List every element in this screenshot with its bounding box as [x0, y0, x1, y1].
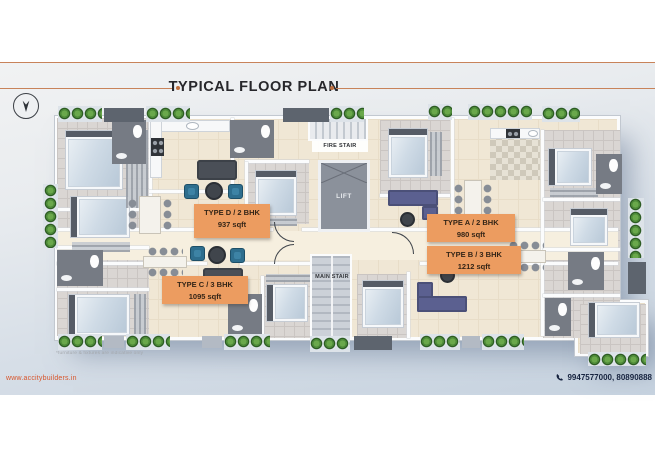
unit-label-type-c: TYPE C / 3 BHK 1095 sqft — [162, 276, 248, 304]
balcony-slab — [202, 336, 222, 348]
disclaimer-text: *furniture & fixtures are indicative onl… — [56, 351, 143, 356]
phone-icon — [555, 373, 564, 382]
planter — [310, 336, 350, 352]
armchair — [190, 246, 205, 261]
unit-area: 980 sqft — [457, 230, 485, 239]
bed — [570, 208, 608, 246]
floor-plan: FIRE STAIR LIFT MAIN STAIR TYPE D / 2 BH… — [40, 104, 652, 376]
planter — [146, 106, 190, 122]
brochure-page: TYPICAL FLOOR PLAN — [0, 0, 655, 456]
armchair — [228, 184, 243, 199]
planter — [428, 104, 452, 120]
planter — [43, 184, 58, 248]
coffee-table — [205, 182, 223, 200]
dining-set — [127, 196, 173, 234]
title-dot-right — [330, 86, 334, 90]
bathroom — [568, 252, 604, 290]
rug — [134, 294, 146, 336]
unit-name: TYPE C / 3 BHK — [177, 280, 233, 289]
unit-area: 937 sqft — [218, 220, 246, 229]
main-stair — [310, 254, 352, 338]
sofa — [388, 190, 438, 206]
planter — [542, 106, 580, 122]
unit-area: 1212 sqft — [458, 262, 491, 271]
phone-contact: 9947577000, 80890888 — [555, 373, 652, 382]
unit-area: 1095 sqft — [189, 292, 222, 301]
planter — [420, 334, 460, 350]
stove — [506, 129, 520, 138]
planter — [58, 334, 102, 350]
planter — [628, 198, 644, 258]
wall — [57, 288, 149, 291]
planter — [126, 334, 170, 350]
planter — [330, 106, 364, 122]
sofa — [417, 296, 467, 312]
balcony-slab — [462, 336, 480, 348]
wall — [543, 198, 620, 201]
bed — [588, 302, 640, 338]
bathroom — [57, 250, 103, 286]
kitchen-sink — [186, 122, 199, 130]
planter — [468, 104, 532, 120]
fire-stair-label: FIRE STAIR — [312, 141, 368, 152]
dining-set — [143, 246, 187, 278]
lift: LIFT — [318, 160, 370, 232]
unit-label-type-a: TYPE A / 2 BHK 980 sqft — [427, 214, 515, 242]
unit-name: TYPE B / 3 BHK — [446, 250, 502, 259]
planter — [224, 334, 270, 350]
rug — [430, 132, 442, 176]
unit-label-type-d: TYPE D / 2 BHK 937 sqft — [194, 204, 270, 238]
bathroom — [230, 120, 274, 158]
bed — [68, 294, 130, 336]
main-stair-label: MAIN STAIR — [292, 274, 372, 280]
stove — [151, 138, 164, 156]
page-title: TYPICAL FLOOR PLAN — [0, 79, 508, 95]
wall — [407, 272, 410, 338]
rug — [550, 188, 598, 197]
bed — [70, 196, 130, 238]
unit-label-type-b: TYPE B / 3 BHK 1212 sqft — [427, 246, 521, 274]
sofa — [197, 160, 237, 180]
planter — [482, 334, 524, 350]
kitchen-sink — [528, 130, 538, 137]
balcony-slab — [104, 336, 124, 348]
armchair — [184, 184, 199, 199]
bed — [266, 284, 308, 322]
north-arrow-icon — [13, 93, 39, 119]
coffee-table — [400, 212, 415, 227]
wall — [543, 248, 620, 251]
bathroom — [596, 154, 622, 194]
balcony-slab — [628, 262, 646, 294]
planter — [58, 106, 102, 122]
bed — [388, 128, 428, 178]
balcony-slab — [104, 108, 144, 122]
north-arrow-glyph — [18, 98, 34, 114]
planter — [588, 352, 646, 366]
title-rule-right — [336, 88, 655, 89]
wall — [245, 160, 309, 163]
wall — [302, 228, 318, 231]
bathroom — [112, 120, 146, 164]
bed — [548, 148, 592, 186]
coffee-table — [208, 246, 226, 264]
bed — [362, 280, 404, 328]
unit-name: TYPE D / 2 BHK — [204, 208, 260, 217]
bathroom — [545, 298, 571, 336]
balcony-slab — [283, 108, 329, 122]
website-text: www.accitybuilders.in — [6, 375, 77, 382]
armchair — [230, 248, 245, 263]
wall — [541, 130, 544, 336]
unit-name: TYPE A / 2 BHK — [443, 218, 498, 227]
wall — [543, 294, 620, 297]
lift-label: LIFT — [336, 193, 352, 200]
phone-numbers: 9947577000, 80890888 — [567, 373, 652, 382]
balcony-slab — [354, 336, 392, 350]
